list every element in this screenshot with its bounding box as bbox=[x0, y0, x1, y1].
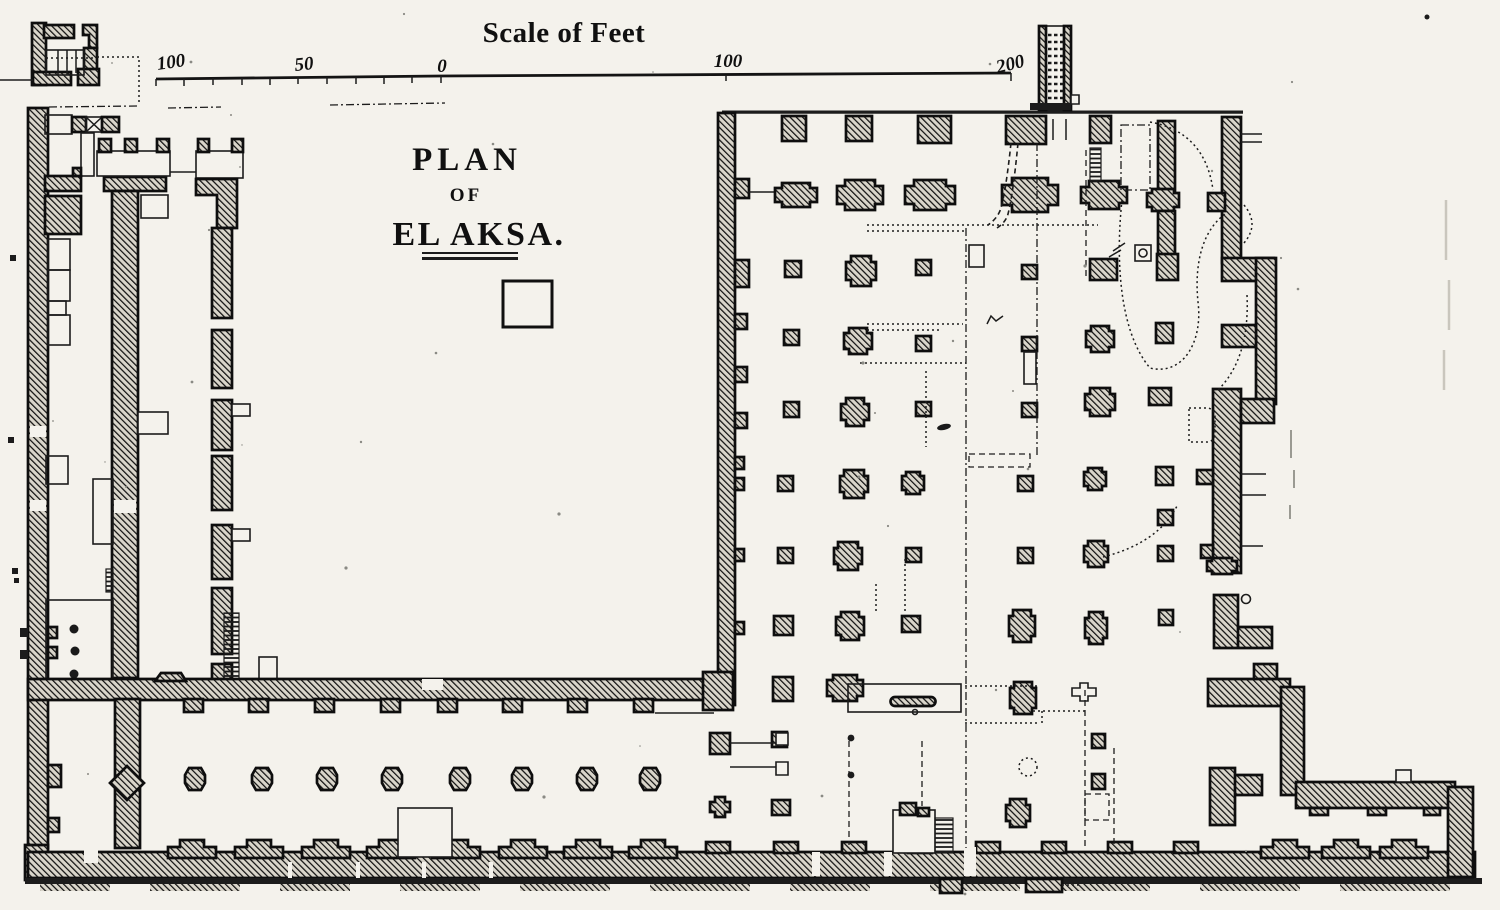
svg-text:EL AKSA.: EL AKSA. bbox=[392, 216, 565, 253]
svg-text:50: 50 bbox=[294, 53, 316, 76]
svg-text:100: 100 bbox=[714, 51, 743, 72]
svg-text:100: 100 bbox=[155, 50, 187, 75]
svg-text:OF: OF bbox=[450, 185, 482, 206]
svg-text:Scale of Feet: Scale of Feet bbox=[483, 17, 646, 49]
svg-text:0: 0 bbox=[437, 56, 447, 77]
svg-text:PLAN: PLAN bbox=[412, 142, 522, 178]
